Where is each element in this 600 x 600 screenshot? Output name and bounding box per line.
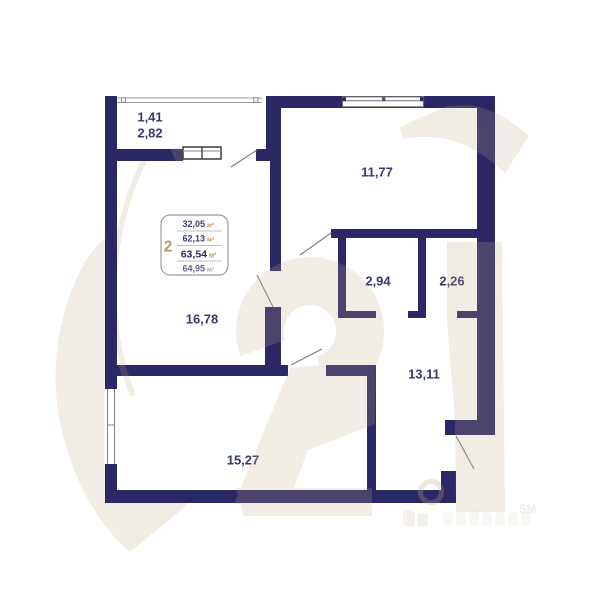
svg-text:м²: м²: [207, 237, 215, 244]
svg-text:13,11: 13,11: [408, 367, 440, 382]
svg-text:1,41: 1,41: [137, 110, 162, 125]
svg-text:63,54: 63,54: [181, 249, 207, 261]
svg-text:32,05: 32,05: [182, 219, 205, 229]
svg-text:2: 2: [164, 239, 173, 256]
svg-text:м²: м²: [207, 222, 215, 229]
svg-text:11,77: 11,77: [361, 165, 393, 180]
svg-text:м²: м²: [207, 267, 215, 274]
svg-text:62,13: 62,13: [182, 234, 205, 244]
svg-text:м²: м²: [209, 253, 217, 260]
svg-text:64,95: 64,95: [182, 264, 205, 274]
svg-text:SM: SM: [519, 504, 536, 516]
svg-text:2,94: 2,94: [365, 274, 391, 289]
svg-text:16,78: 16,78: [186, 312, 219, 327]
svg-text:2,82: 2,82: [137, 126, 162, 141]
